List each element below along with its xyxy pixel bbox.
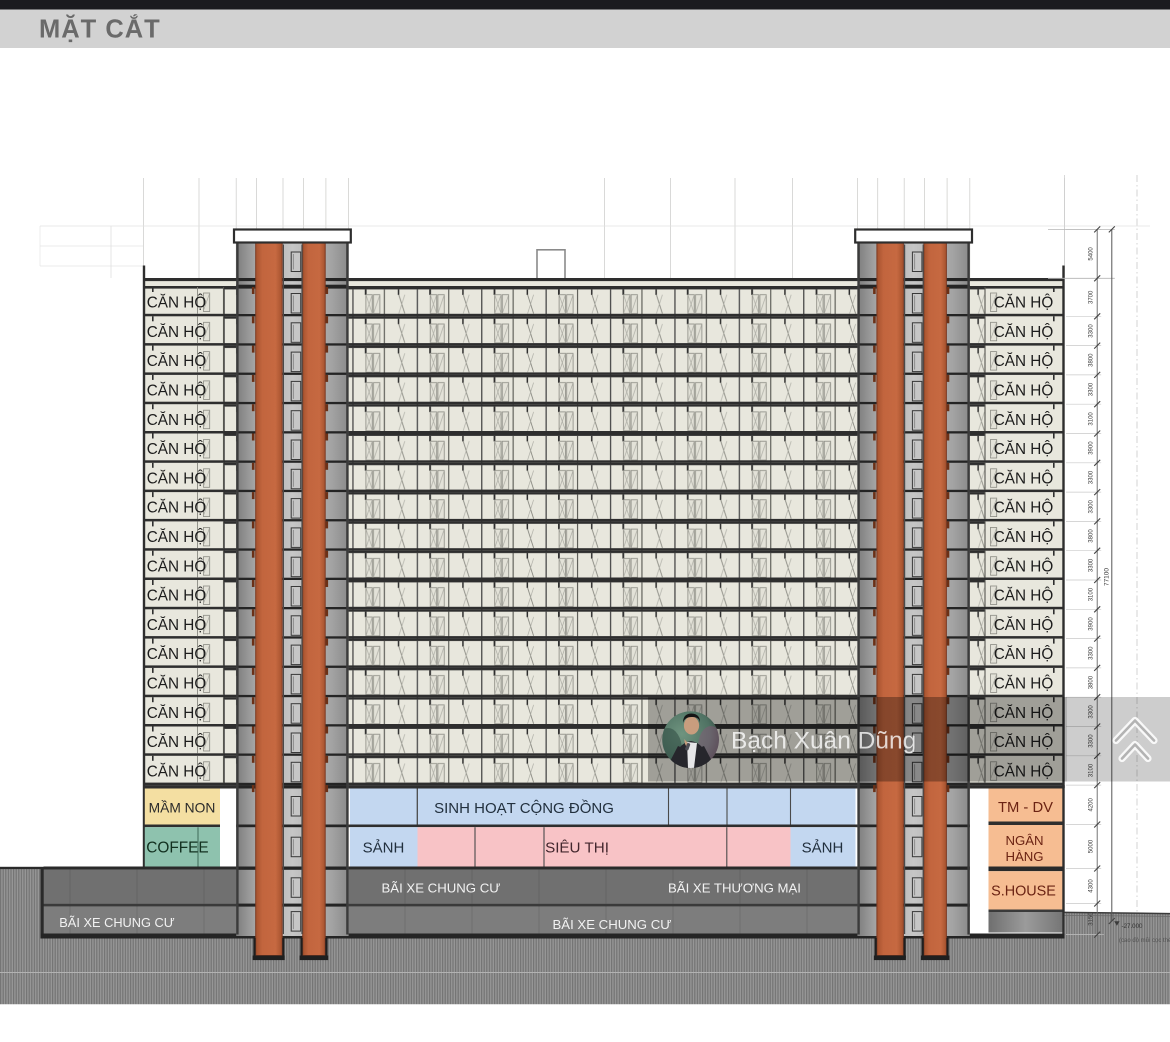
svg-text:-27.000: -27.000	[1122, 923, 1144, 930]
svg-text:4300: 4300	[1089, 879, 1095, 893]
svg-text:CĂN HỘ: CĂN HỘ	[994, 558, 1054, 575]
svg-text:CĂN HỘ: CĂN HỘ	[994, 383, 1054, 400]
svg-text:SIÊU THỊ: SIÊU THỊ	[545, 840, 609, 857]
svg-text:CĂN HỘ: CĂN HỘ	[994, 617, 1054, 634]
svg-text:CĂN HỘ: CĂN HỘ	[147, 617, 207, 634]
svg-text:CĂN HỘ: CĂN HỘ	[147, 324, 207, 341]
svg-text:TM - DV: TM - DV	[998, 800, 1053, 816]
svg-text:3300: 3300	[1089, 470, 1095, 484]
svg-text:77100: 77100	[1104, 568, 1111, 586]
svg-text:SẢNH: SẢNH	[802, 840, 844, 857]
svg-text:CĂN HỘ: CĂN HỘ	[147, 412, 207, 429]
svg-text:CĂN HỘ: CĂN HỘ	[147, 529, 207, 546]
svg-text:3300: 3300	[1089, 324, 1095, 338]
svg-text:HÀNG: HÀNG	[1005, 849, 1043, 864]
svg-text:5000: 5000	[1089, 839, 1095, 853]
svg-text:3300: 3300	[1089, 382, 1095, 396]
svg-text:CĂN HỘ: CĂN HỘ	[994, 676, 1054, 693]
svg-text:SẢNH: SẢNH	[363, 840, 405, 857]
svg-text:3300: 3300	[1089, 499, 1095, 513]
svg-text:CĂN HỘ: CĂN HỘ	[147, 383, 207, 400]
svg-text:CĂN HỘ: CĂN HỘ	[994, 412, 1054, 429]
svg-text:CĂN HỘ: CĂN HỘ	[147, 763, 207, 780]
svg-text:CĂN HỘ: CĂN HỘ	[147, 441, 207, 458]
svg-text:3300: 3300	[1089, 558, 1095, 572]
svg-text:3100: 3100	[1089, 587, 1095, 601]
svg-text:CĂN HỘ: CĂN HỘ	[147, 676, 207, 693]
svg-text:3150: 3150	[1089, 912, 1095, 926]
svg-text:CĂN HỘ: CĂN HỘ	[147, 705, 207, 722]
svg-text:CĂN HỘ: CĂN HỘ	[147, 646, 207, 663]
svg-text:CĂN HỘ: CĂN HỘ	[147, 734, 207, 751]
svg-text:CĂN HỘ: CĂN HỘ	[994, 295, 1054, 312]
svg-text:CĂN HỘ: CĂN HỘ	[994, 646, 1054, 663]
svg-text:MẦM NON: MẦM NON	[149, 800, 216, 816]
svg-text:MẶT CẮT: MẶT CẮT	[39, 14, 161, 44]
svg-text:5400: 5400	[1089, 247, 1095, 261]
svg-text:SINH HOẠT CỘNG ĐỒNG: SINH HOẠT CỘNG ĐỒNG	[434, 799, 614, 817]
svg-text:CĂN HỘ: CĂN HỘ	[147, 353, 207, 370]
svg-text:COFFEE: COFFEE	[146, 840, 208, 857]
svg-text:CĂN HỘ: CĂN HỘ	[147, 588, 207, 605]
svg-text:CĂN HỘ: CĂN HỘ	[147, 558, 207, 575]
svg-text:CĂN HỘ: CĂN HỘ	[147, 295, 207, 312]
svg-text:4200: 4200	[1089, 797, 1095, 811]
svg-text:(cao độ mũi cọc thép): (cao độ mũi cọc thép)	[1119, 938, 1170, 944]
svg-text:3800: 3800	[1089, 675, 1095, 689]
svg-text:3700: 3700	[1089, 290, 1095, 304]
svg-text:BÃI XE CHUNG CƯ: BÃI XE CHUNG CƯ	[59, 915, 175, 930]
svg-text:CĂN HỘ: CĂN HỘ	[994, 470, 1054, 487]
svg-text:CĂN HỘ: CĂN HỘ	[147, 500, 207, 517]
svg-text:3100: 3100	[1089, 412, 1095, 426]
svg-text:3800: 3800	[1089, 353, 1095, 367]
svg-text:CĂN HỘ: CĂN HỘ	[994, 441, 1054, 458]
svg-text:CĂN HỘ: CĂN HỘ	[994, 500, 1054, 517]
svg-text:CĂN HỘ: CĂN HỘ	[994, 529, 1054, 546]
svg-text:CĂN HỘ: CĂN HỘ	[994, 353, 1054, 370]
svg-text:3900: 3900	[1089, 617, 1095, 631]
svg-text:S.HOUSE: S.HOUSE	[991, 884, 1056, 900]
svg-text:CĂN HỘ: CĂN HỘ	[994, 324, 1054, 341]
svg-text:CĂN HỘ: CĂN HỘ	[994, 588, 1054, 605]
svg-text:BÃI XE CHUNG CƯ: BÃI XE CHUNG CƯ	[553, 917, 672, 932]
svg-text:Bạch Xuân Dũng: Bạch Xuân Dũng	[731, 728, 916, 755]
svg-text:3800: 3800	[1089, 529, 1095, 543]
svg-text:BÃI XE CHUNG CƯ: BÃI XE CHUNG CƯ	[382, 881, 501, 896]
svg-text:3900: 3900	[1089, 441, 1095, 455]
svg-text:NGÂN: NGÂN	[1005, 833, 1043, 848]
svg-text:BÃI XE THƯƠNG MẠI: BÃI XE THƯƠNG MẠI	[668, 881, 801, 896]
svg-text:CĂN HỘ: CĂN HỘ	[147, 470, 207, 487]
svg-text:3300: 3300	[1089, 646, 1095, 660]
